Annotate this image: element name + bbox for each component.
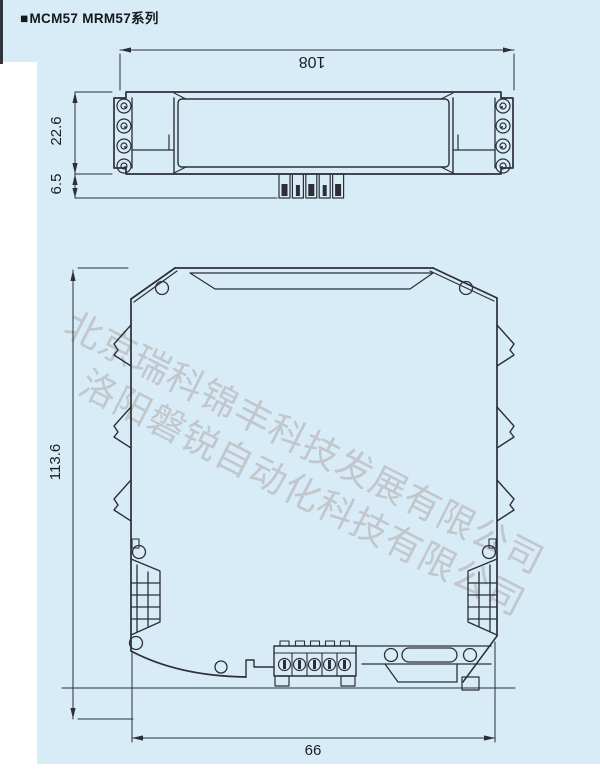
front-terminal-block bbox=[274, 641, 356, 686]
label-recess bbox=[190, 273, 433, 289]
top-view-drawing bbox=[114, 92, 513, 198]
front-left-terminal-stack bbox=[130, 546, 161, 650]
front-bottom-right-foot bbox=[356, 636, 497, 690]
dim-label-height-113-6: 113.6 bbox=[48, 422, 64, 502]
dim-label-height-22-6: 22.6 bbox=[49, 101, 65, 161]
dim-label-width-66: 66 bbox=[283, 743, 343, 759]
front-top-left-screw-hole bbox=[156, 282, 169, 295]
top-view-right-terminals bbox=[496, 99, 510, 173]
front-view-drawing bbox=[62, 268, 515, 690]
front-view-dimensions bbox=[70, 268, 495, 742]
top-view-dimensions bbox=[72, 47, 514, 198]
top-view-pins bbox=[279, 174, 344, 198]
dim-label-width-108: 108 bbox=[282, 53, 342, 69]
dim-label-pins-6-5: 6.5 bbox=[49, 154, 65, 214]
technical-drawing bbox=[0, 0, 600, 774]
front-right-terminal-stack bbox=[468, 546, 497, 636]
top-view-left-terminals bbox=[117, 99, 131, 173]
catalog-page: ■MCM57 MRM57系列 北京瑞科锦丰科技发展有限公司 洛阳磐锐自动化科技有… bbox=[0, 0, 600, 774]
